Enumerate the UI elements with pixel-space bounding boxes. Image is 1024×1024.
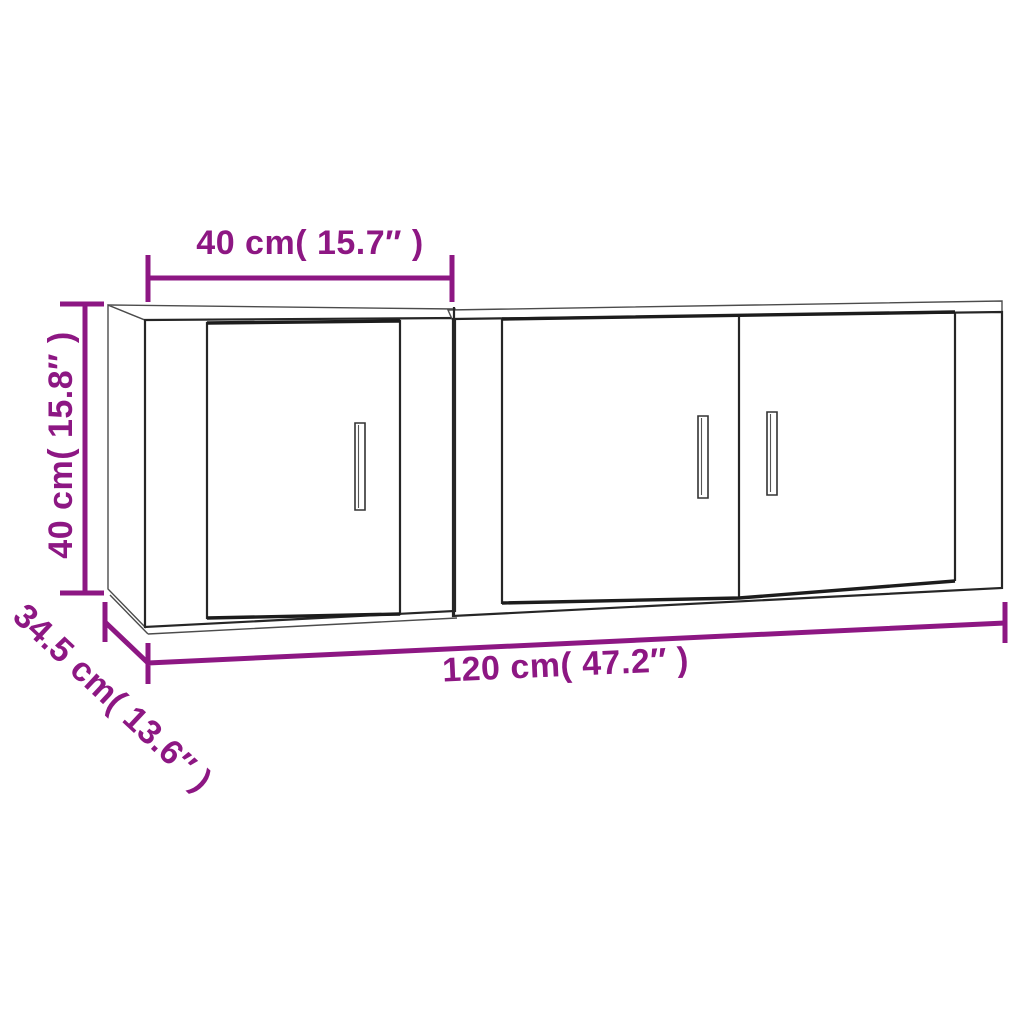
right-cabinet-front-frame xyxy=(453,312,1002,616)
dimension-cabinet-depth: 34.5 cm( 13.6″ ) xyxy=(6,597,220,800)
handle-bar xyxy=(767,412,777,495)
handle-bar xyxy=(698,416,708,498)
dimension-line xyxy=(148,255,452,302)
handle-bar xyxy=(355,423,365,510)
product-dimension-diagram: 40 cm( 15.7″ ) 40 cm( 15.8″ ) 34.5 cm( 1… xyxy=(0,0,1024,1024)
right-cabinet-left-door-handle xyxy=(698,416,708,498)
left-cabinet-door-handle xyxy=(355,423,365,510)
right-cabinet-door-edges-horizontal xyxy=(502,312,955,603)
dimension-diagram-canvas: 40 cm( 15.7″ ) 40 cm( 15.8″ ) 34.5 cm( 1… xyxy=(0,0,1024,1024)
left-cabinet-side-panel xyxy=(108,305,145,627)
left-cabinet xyxy=(108,305,457,634)
cabinet-height-label: 40 cm( 15.8″ ) xyxy=(42,331,80,558)
cabinet-width-label: 40 cm( 15.7″ ) xyxy=(196,224,423,262)
right-cabinet xyxy=(448,301,1002,616)
right-cabinet-door-edges-vertical xyxy=(502,312,955,604)
left-cabinet-door xyxy=(207,321,400,618)
dimension-cabinet-height: 40 cm( 15.8″ ) xyxy=(42,304,104,593)
right-cabinet-right-door-handle xyxy=(767,412,777,495)
dimension-cabinet-width: 40 cm( 15.7″ ) xyxy=(148,224,452,302)
